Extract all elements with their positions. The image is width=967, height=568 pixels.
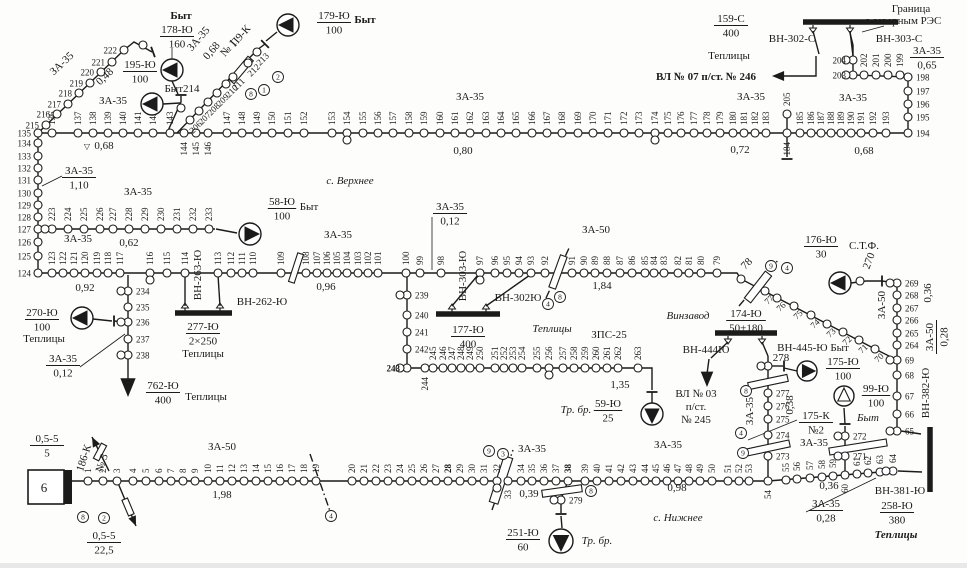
- pole: [552, 477, 560, 485]
- pole: [204, 129, 212, 137]
- pole-label: 187: [816, 111, 826, 125]
- pole-label: 90: [579, 256, 589, 266]
- circled-number-label: 4: [785, 264, 789, 273]
- pole-label: 236: [136, 318, 150, 328]
- pole: [333, 269, 341, 277]
- text-label: С.Т.Ф.: [849, 240, 879, 252]
- pole: [500, 364, 508, 372]
- pole-label: 190: [846, 111, 856, 125]
- fraction-top: ЗА-35: [65, 165, 94, 177]
- fraction-bottom: 160: [169, 39, 186, 51]
- pole-label: 222: [104, 46, 118, 56]
- pole-label: 32: [492, 464, 502, 473]
- fraction-top: ЗА-50: [924, 322, 936, 351]
- pole-label: 49: [695, 464, 705, 474]
- pole: [34, 252, 42, 260]
- circled-number-label: 8: [249, 90, 253, 99]
- pole: [116, 269, 124, 277]
- text-label: ВН-303-Ю: [457, 251, 469, 301]
- text-label: ▽: [84, 142, 91, 151]
- text-label: Теплицы: [532, 323, 572, 335]
- pole-label: 172: [619, 112, 629, 126]
- pole: [223, 129, 231, 137]
- pole-label: 159: [419, 111, 429, 125]
- pole-label: 7: [166, 468, 176, 473]
- pole: [713, 269, 721, 277]
- pole-label: 61: [852, 457, 862, 466]
- pole-label: 99: [415, 256, 425, 266]
- pole: [581, 477, 589, 485]
- pole-label: 151: [283, 112, 293, 126]
- pole-label: 147: [222, 111, 232, 125]
- pole-label: 33: [503, 490, 513, 500]
- pole-label: 204: [833, 56, 847, 66]
- pole-label: 263: [633, 346, 643, 360]
- pole-label: 30: [467, 464, 477, 474]
- pole-label: 185: [795, 111, 805, 125]
- pole: [628, 269, 636, 277]
- text-label: ВЛ № 07 п/ст. № 246: [656, 71, 757, 83]
- pole: [396, 477, 404, 485]
- pole: [457, 364, 465, 372]
- fraction-bottom: 0,12: [440, 216, 459, 228]
- pole-label: 260: [591, 346, 601, 360]
- text-label: ЗА-50: [582, 224, 611, 236]
- text-label: 0,80: [453, 145, 473, 157]
- pole-label: 162: [465, 112, 475, 126]
- circled-number-label: 9: [487, 447, 491, 456]
- fraction-bottom: 50+180: [729, 323, 763, 335]
- pole: [616, 269, 624, 277]
- network-diagram: 1351361371381391401411421431441451461471…: [0, 0, 967, 563]
- pole-label: 188: [826, 111, 836, 125]
- pole: [181, 269, 189, 277]
- pole-label: 154: [342, 111, 352, 125]
- pole-label: 46: [662, 464, 672, 474]
- fraction-bottom: 25: [603, 413, 615, 425]
- pole: [205, 225, 213, 233]
- pole: [904, 87, 912, 95]
- pole: [343, 136, 351, 144]
- pole: [34, 152, 42, 160]
- pole: [605, 477, 613, 485]
- pole-label: 8: [178, 468, 188, 473]
- fraction-top: 270-Ю: [26, 307, 57, 319]
- pole-label: 156: [373, 111, 383, 125]
- pole-label: 133: [18, 152, 32, 162]
- pole: [456, 477, 464, 485]
- pole-label: 223: [47, 207, 57, 221]
- fraction-bottom: 100: [326, 25, 343, 37]
- pole: [857, 129, 865, 137]
- pole-label: 240: [415, 311, 429, 321]
- pole-label: 257: [558, 346, 568, 360]
- pole: [402, 269, 410, 277]
- pole-label: 23: [383, 464, 393, 474]
- wire: [898, 471, 922, 472]
- pole: [782, 476, 790, 484]
- text-label: ВН-302-С: [769, 33, 815, 45]
- pole-label: 88: [602, 256, 612, 266]
- fraction-top: 195-Ю: [124, 59, 155, 71]
- fraction-bottom: 0,12: [53, 368, 72, 380]
- text-label: ЗА-35: [99, 95, 128, 107]
- pole-label: 9: [190, 468, 200, 473]
- pole-label: 166: [527, 111, 537, 125]
- pole: [276, 477, 284, 485]
- pole-label: 201: [871, 54, 881, 68]
- pole: [420, 129, 428, 137]
- pole-label: 50: [707, 464, 717, 474]
- pole-label: 178: [702, 111, 712, 125]
- pole-label: 55: [781, 463, 791, 473]
- pole-label: 103: [353, 251, 363, 265]
- fraction-top: ЗА-35: [49, 353, 78, 365]
- pole: [437, 269, 445, 277]
- pole-label: 173: [634, 111, 644, 125]
- text-label: Быт: [856, 412, 879, 424]
- pole-label: 4: [128, 468, 138, 473]
- pole-label: 145: [191, 142, 201, 156]
- pole: [389, 129, 397, 137]
- text-label: с северным РЭС: [865, 15, 942, 27]
- pole-label: 45: [651, 464, 661, 474]
- pole-label: 12: [227, 464, 237, 473]
- pole: [904, 113, 912, 121]
- pole-label: 26: [419, 464, 429, 474]
- pole-label: 81: [684, 256, 694, 265]
- pole-label: 168: [557, 111, 567, 125]
- pole: [796, 129, 804, 137]
- pole-label: 31: [479, 464, 489, 473]
- pole: [403, 345, 411, 353]
- pole: [764, 402, 772, 410]
- pole: [882, 129, 890, 137]
- pole: [313, 269, 321, 277]
- fraction-bottom: 400: [460, 339, 477, 351]
- pole: [120, 46, 128, 54]
- circled-number-label: 4: [546, 300, 550, 309]
- pole-label: 174: [650, 111, 660, 125]
- pole: [724, 477, 732, 485]
- pole: [466, 129, 474, 137]
- circled-number-label: 2: [102, 514, 106, 523]
- pole: [629, 477, 637, 485]
- fraction-bottom: 100: [274, 211, 291, 223]
- pole-label: 18: [299, 464, 309, 474]
- text-label: ЗА-35: [518, 443, 547, 455]
- text-label: 278: [773, 352, 790, 364]
- pole: [166, 129, 174, 137]
- pole-label: 106: [322, 251, 332, 265]
- substation-label: 6: [41, 480, 48, 495]
- pole: [589, 129, 597, 137]
- pole: [96, 225, 104, 233]
- pole-label: 117: [115, 251, 125, 265]
- pole-label: 21: [359, 464, 369, 473]
- pole: [509, 364, 517, 372]
- pole-label: 57: [805, 461, 815, 471]
- text-label: Быт: [300, 201, 319, 213]
- pole-label: 118: [103, 251, 113, 265]
- pole-label: 111: [237, 252, 247, 265]
- pole-label: 114: [180, 251, 190, 265]
- fraction-top: 0,5-5: [36, 433, 59, 445]
- pole-label: 24: [395, 464, 405, 474]
- pole-label: 267: [905, 304, 919, 314]
- pole: [829, 472, 837, 480]
- pole-label: 243: [387, 364, 401, 374]
- pole: [764, 452, 772, 460]
- pole-label: 215: [26, 121, 40, 131]
- pole-label: 113: [213, 251, 223, 265]
- pole-label: 167: [542, 111, 552, 125]
- pole: [74, 129, 82, 137]
- pole-label: 197: [916, 87, 930, 97]
- pole: [896, 71, 904, 79]
- pole: [177, 104, 185, 112]
- circled-number-label: 8: [589, 487, 593, 496]
- pole-label: 137: [73, 111, 83, 125]
- text-label: с. Нижнее: [653, 512, 702, 524]
- pole: [904, 73, 912, 81]
- fraction-bottom: 100: [34, 322, 51, 334]
- circled-number-label: 3: [501, 450, 505, 459]
- text-label: 0,92: [75, 282, 94, 294]
- pole: [374, 129, 382, 137]
- fraction-top: 762-Ю: [147, 380, 178, 392]
- pole-label: 48: [684, 464, 694, 474]
- pole: [697, 269, 705, 277]
- pole: [708, 477, 716, 485]
- pole: [834, 432, 842, 440]
- pole: [806, 474, 814, 482]
- pole: [34, 189, 42, 197]
- pole-label: 199: [895, 53, 905, 67]
- text-label: Теплицы: [875, 529, 918, 541]
- pole: [568, 269, 576, 277]
- pole: [764, 389, 772, 397]
- pole: [228, 477, 236, 485]
- pole-label: 262: [613, 347, 623, 361]
- pole: [641, 477, 649, 485]
- pole: [124, 335, 132, 343]
- circled-number-label: 8: [744, 387, 748, 396]
- text-label: ЗА-35: [737, 91, 766, 103]
- pole-label: 245: [428, 346, 438, 360]
- fraction-top: 59-Ю: [595, 398, 621, 410]
- pole-label: 131: [18, 176, 32, 186]
- pole: [466, 364, 474, 372]
- pole: [117, 351, 125, 359]
- pole: [745, 477, 753, 485]
- pole-label: 177: [689, 111, 699, 125]
- pole: [604, 129, 612, 137]
- pole: [444, 477, 452, 485]
- text-label: ЗА-35: [64, 233, 93, 245]
- text-label: ЗПС-25: [591, 329, 627, 341]
- pole-label: 116: [145, 251, 155, 265]
- fraction-bottom: 100: [132, 74, 149, 86]
- pole-label: 225: [79, 207, 89, 221]
- pole: [886, 356, 894, 364]
- text-label: ВЛ № 03: [675, 388, 717, 400]
- fraction-bottom: 400: [723, 28, 740, 40]
- pole: [34, 238, 42, 246]
- pole-label: 65: [905, 427, 915, 437]
- fraction-bottom: 0,28: [939, 327, 951, 347]
- pole: [364, 269, 372, 277]
- pole-label: 143: [165, 111, 175, 125]
- pole-label: 108: [301, 251, 311, 265]
- fraction-bottom: 100: [835, 371, 852, 383]
- pole-label: 205: [782, 92, 792, 106]
- pole-label: 261: [602, 347, 612, 361]
- pole: [300, 129, 308, 137]
- pole: [84, 477, 92, 485]
- pole: [312, 477, 320, 485]
- pole: [405, 129, 413, 137]
- pole: [893, 316, 901, 324]
- pole-label: 179: [715, 111, 725, 125]
- pole-label: 87: [615, 256, 625, 266]
- pole: [504, 477, 512, 485]
- pole-label: 235: [136, 303, 150, 313]
- pole-label: 20: [347, 464, 357, 474]
- pole: [180, 129, 188, 137]
- pole: [119, 129, 127, 137]
- pole-label: 121: [69, 252, 79, 266]
- pole-label: 10: [203, 464, 213, 474]
- pole: [384, 477, 392, 485]
- pole-label: 218: [59, 89, 73, 99]
- pole: [764, 415, 772, 423]
- pole-label: 93: [526, 256, 536, 266]
- pole: [674, 269, 682, 277]
- pole: [635, 129, 643, 137]
- substation-busbar: [64, 470, 72, 504]
- pole-label: 11: [215, 464, 225, 473]
- fraction-bottom: 5: [44, 448, 50, 460]
- fraction-bottom: 0,65: [917, 60, 937, 72]
- pole: [253, 129, 261, 137]
- text-label: ЗА-35: [654, 439, 683, 451]
- fraction-top: 176-Ю: [805, 234, 836, 246]
- pole-label: 138: [88, 111, 98, 125]
- pole-label: 96: [490, 256, 500, 266]
- pole: [860, 71, 868, 79]
- pole: [302, 269, 310, 277]
- pole: [696, 477, 704, 485]
- pole: [48, 129, 56, 137]
- pole: [493, 484, 501, 492]
- pole-label: 54: [763, 490, 773, 500]
- pole-label: 169: [573, 111, 583, 125]
- pole-label: 232: [188, 208, 198, 222]
- pole-label: 29: [455, 464, 465, 474]
- pole-label: 217: [48, 100, 62, 110]
- pole-label: 79: [712, 256, 722, 266]
- pole: [227, 269, 235, 277]
- pole: [533, 364, 541, 372]
- pole: [81, 269, 89, 277]
- text-label: ВН-382-Ю: [920, 368, 932, 418]
- pole: [214, 269, 222, 277]
- pole-label: 273: [776, 452, 790, 462]
- pole-label: 107: [312, 251, 322, 265]
- pole-label: 216: [37, 110, 51, 120]
- pole-label: 105: [332, 251, 342, 265]
- pole-label: 184: [782, 142, 792, 156]
- pole: [740, 129, 748, 137]
- pole: [34, 213, 42, 221]
- pole-label: 158: [404, 111, 414, 125]
- pole: [677, 129, 685, 137]
- pole: [841, 471, 849, 479]
- pole-label: 149: [252, 111, 262, 125]
- pole: [762, 129, 770, 137]
- text-label: ЗА-50: [876, 290, 888, 319]
- circled-number-label: 2: [276, 73, 280, 82]
- pole-label: 237: [136, 335, 150, 345]
- pole: [117, 287, 125, 295]
- pole: [204, 477, 212, 485]
- pole-label: 200: [883, 53, 893, 67]
- pole: [886, 427, 894, 435]
- text-label: с. Верхнее: [326, 175, 373, 187]
- fraction-bottom: №2: [808, 425, 824, 437]
- pole-label: 141: [133, 112, 143, 126]
- pole: [476, 364, 484, 372]
- pole: [641, 269, 649, 277]
- pole: [853, 470, 861, 478]
- text-label: 0,68: [854, 145, 874, 157]
- pole: [581, 364, 589, 372]
- text-label: п/ст.: [686, 401, 707, 413]
- fraction-bottom: 400: [155, 395, 172, 407]
- pole: [372, 477, 380, 485]
- pole: [439, 364, 447, 372]
- pole-label: 58: [817, 460, 827, 470]
- circled-number-label: 8: [558, 293, 562, 302]
- pole-label: 194: [916, 129, 930, 139]
- pole-label: 132: [18, 164, 32, 174]
- fraction-top: 277-Ю: [187, 321, 218, 333]
- text-label: 0,36: [922, 283, 934, 303]
- pole-label: 35: [527, 464, 537, 474]
- pole-label: 124: [18, 269, 32, 279]
- fraction-bottom: 380: [889, 515, 906, 527]
- pole: [591, 269, 599, 277]
- pole-label: 233: [204, 207, 214, 221]
- text-label: ВН-303-С: [876, 33, 922, 45]
- text-label: 0,38: [784, 395, 796, 415]
- pole: [416, 269, 424, 277]
- pole: [249, 269, 257, 277]
- pole: [421, 364, 429, 372]
- pole: [570, 364, 578, 372]
- pole: [238, 129, 246, 137]
- pole: [817, 129, 825, 137]
- pole-label: 126: [18, 238, 32, 248]
- pole: [41, 225, 49, 233]
- pole: [108, 58, 116, 66]
- pole: [634, 364, 642, 372]
- pole: [603, 364, 611, 372]
- pole: [163, 269, 171, 277]
- pole: [189, 225, 197, 233]
- pole: [515, 269, 523, 277]
